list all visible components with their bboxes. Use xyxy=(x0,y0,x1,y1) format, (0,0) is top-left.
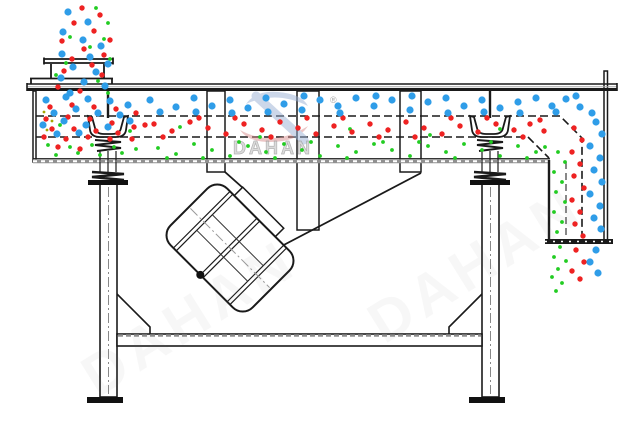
particle-dot xyxy=(345,156,349,160)
particle-dot xyxy=(478,96,485,103)
particle-dot xyxy=(63,136,68,141)
particle-dot xyxy=(246,144,250,148)
particle-dot xyxy=(555,230,559,234)
particle-dot xyxy=(597,225,604,232)
particle-dot xyxy=(61,68,66,73)
particle-dot xyxy=(156,146,160,150)
right-support-spring xyxy=(470,91,510,183)
particle-dot xyxy=(552,108,559,115)
particle-dot xyxy=(237,140,241,144)
particle-dot xyxy=(86,53,93,60)
particle-dot xyxy=(101,82,108,89)
particle-dot xyxy=(573,247,578,252)
particle-dot xyxy=(205,125,210,130)
particle-dot xyxy=(51,120,54,123)
particle-dot xyxy=(417,140,421,144)
particle-dot xyxy=(49,126,54,131)
particle-dot xyxy=(172,103,179,110)
particle-dot xyxy=(316,96,323,103)
particle-dot xyxy=(331,123,336,128)
particle-dot xyxy=(42,96,49,103)
brand-watermark: DAHAN ® DAHAN DAHAN xyxy=(70,92,594,409)
particle-dot xyxy=(598,178,605,185)
particle-dot xyxy=(71,126,76,131)
particle-dot xyxy=(53,130,60,137)
particle-dot xyxy=(60,117,67,124)
particle-dot xyxy=(442,94,449,101)
particle-dot xyxy=(563,160,567,164)
particle-dot xyxy=(129,136,134,141)
brand-watermark-text: DAHAN xyxy=(233,138,313,158)
particle-dot xyxy=(484,115,489,120)
particle-dot xyxy=(228,154,232,158)
particle-dot xyxy=(201,156,205,160)
particle-dot xyxy=(381,140,385,144)
particle-dot xyxy=(39,121,46,128)
particle-dot xyxy=(97,12,102,17)
particle-dot xyxy=(590,214,597,221)
particle-dot xyxy=(106,97,113,104)
particle-dot xyxy=(68,35,72,39)
particle-dot xyxy=(126,117,133,124)
particle-dot xyxy=(406,106,413,113)
particle-dot xyxy=(146,96,153,103)
particle-dot xyxy=(46,143,50,147)
particle-dot xyxy=(91,28,96,33)
particle-dot xyxy=(43,116,48,121)
particle-dot xyxy=(554,190,558,194)
particle-dot xyxy=(496,104,503,111)
screen-box-right-wall xyxy=(604,71,608,243)
particle-dot xyxy=(457,123,462,128)
particle-dot xyxy=(174,152,178,156)
particle-dot xyxy=(598,130,605,137)
screen-box-left-wall xyxy=(33,91,36,162)
particle-dot xyxy=(560,220,564,224)
particle-dot xyxy=(88,45,92,49)
particle-dot xyxy=(537,117,542,122)
particle-dot xyxy=(85,134,90,139)
particle-dot xyxy=(480,108,487,115)
particle-dot xyxy=(569,268,574,273)
particle-dot xyxy=(196,115,201,120)
particle-dot xyxy=(543,145,547,149)
particle-dot xyxy=(376,134,381,139)
particle-dot xyxy=(548,102,555,109)
particle-dot xyxy=(54,73,58,77)
particle-dot xyxy=(81,46,86,51)
particle-dot xyxy=(77,88,82,93)
particle-dot xyxy=(588,109,595,116)
particle-dot xyxy=(439,131,444,136)
particle-dot xyxy=(516,144,520,148)
particle-dot xyxy=(59,28,66,35)
particle-dot xyxy=(480,148,484,152)
particle-dot xyxy=(96,79,100,83)
particle-dot xyxy=(87,116,92,121)
particle-dot xyxy=(69,63,76,70)
particle-dot xyxy=(370,102,377,109)
particle-dot xyxy=(336,109,343,116)
particle-dot xyxy=(59,38,64,43)
particle-dot xyxy=(313,131,318,136)
particle-dot xyxy=(268,134,273,139)
particle-dot xyxy=(554,289,558,293)
particle-dot xyxy=(84,95,91,102)
particle-dot xyxy=(104,123,111,130)
particle-dot xyxy=(116,111,123,118)
particle-dot xyxy=(178,125,182,129)
particle-dot xyxy=(68,145,72,149)
faint-diagonal-watermark-2: DAHAN xyxy=(357,174,594,356)
bracket-left-arm xyxy=(225,172,243,188)
particle-dot xyxy=(572,92,579,99)
particle-dot xyxy=(90,143,94,147)
particle-dot xyxy=(592,118,599,125)
particle-dot xyxy=(99,72,104,77)
particle-dot xyxy=(264,150,268,154)
particle-dot xyxy=(453,156,457,160)
particle-dot xyxy=(102,37,106,41)
particle-dot xyxy=(79,5,84,10)
particle-dot xyxy=(46,129,49,132)
particle-dot xyxy=(534,150,538,154)
particle-dot xyxy=(156,108,163,115)
particle-dot xyxy=(403,119,408,124)
particle-dot xyxy=(586,258,593,265)
particle-dot xyxy=(421,125,426,130)
particle-dot xyxy=(372,92,379,99)
particle-dot xyxy=(93,128,98,133)
particle-dot xyxy=(385,127,390,132)
particle-dot xyxy=(84,18,91,25)
particle-dot xyxy=(280,100,287,107)
particle-dot xyxy=(489,140,493,144)
particle-dot xyxy=(556,150,560,154)
particle-dot xyxy=(228,109,235,116)
particle-dot xyxy=(91,104,96,109)
particle-dot xyxy=(72,105,79,112)
particle-dot xyxy=(64,61,68,65)
particle-dot xyxy=(295,125,300,130)
particle-dot xyxy=(69,56,74,61)
particle-dot xyxy=(226,96,233,103)
particle-dot xyxy=(511,127,516,132)
particle-dot xyxy=(75,129,82,136)
particle-dot xyxy=(120,151,124,155)
particle-dot xyxy=(367,121,372,126)
schematic-canvas: DAHAN ® DAHAN DAHAN xyxy=(0,0,638,428)
particle-dot xyxy=(244,104,251,111)
particle-dot xyxy=(532,94,539,101)
particle-dot xyxy=(262,94,269,101)
particle-dot xyxy=(354,150,358,154)
particle-dot xyxy=(151,121,156,126)
particle-dot xyxy=(187,119,192,124)
particle-dot xyxy=(352,94,359,101)
particle-dot xyxy=(97,42,104,49)
particle-dot xyxy=(282,142,286,146)
particle-dot xyxy=(43,111,46,114)
deck-bottom-pan xyxy=(33,159,550,162)
particle-dot xyxy=(572,221,577,226)
particle-dot xyxy=(550,275,554,279)
particle-dot xyxy=(210,148,214,152)
particle-dot xyxy=(541,128,546,133)
particle-dot xyxy=(560,281,564,285)
particle-dot xyxy=(108,57,112,61)
particle-dot xyxy=(47,104,52,109)
particle-dot xyxy=(388,96,395,103)
particle-dot xyxy=(58,123,62,127)
vibrating-screen-schematic: DAHAN ® DAHAN DAHAN xyxy=(0,0,638,428)
particle-dot xyxy=(106,91,110,95)
particle-dot xyxy=(334,102,341,109)
particle-dot xyxy=(577,276,582,281)
particle-dot xyxy=(41,134,46,139)
particle-dot xyxy=(349,129,354,134)
particle-dot xyxy=(514,98,521,105)
particle-dot xyxy=(55,144,60,149)
particle-dot xyxy=(408,92,415,99)
particle-dot xyxy=(552,255,556,259)
particle-dot xyxy=(590,166,597,173)
particle-dot xyxy=(527,121,532,126)
particle-dot xyxy=(241,121,246,126)
particle-dot xyxy=(160,134,165,139)
particle-dot xyxy=(58,50,65,57)
particle-dot xyxy=(304,115,309,120)
particle-dot xyxy=(498,127,502,131)
particle-dot xyxy=(493,121,498,126)
particle-dot xyxy=(264,108,271,115)
particle-dot xyxy=(82,121,89,128)
particle-dot xyxy=(142,122,147,127)
particle-dot xyxy=(460,102,467,109)
particle-dot xyxy=(498,154,502,158)
particle-dot xyxy=(298,106,305,113)
particle-dot xyxy=(208,102,215,109)
particle-dot xyxy=(309,140,313,144)
particle-dot xyxy=(318,154,322,158)
particle-dot xyxy=(336,144,340,148)
particle-dot xyxy=(408,154,412,158)
particle-dot xyxy=(79,36,86,43)
particle-dot xyxy=(128,129,132,133)
particle-dot xyxy=(273,156,277,160)
particle-dot xyxy=(134,147,138,151)
particle-dot xyxy=(169,128,174,133)
particle-dot xyxy=(104,60,111,67)
particle-dot xyxy=(596,154,603,161)
particle-dot xyxy=(223,131,228,136)
particle-dot xyxy=(520,134,525,139)
particle-dot xyxy=(92,68,99,75)
particle-dot xyxy=(586,142,593,149)
particle-dot xyxy=(300,148,304,152)
particle-dot xyxy=(558,245,562,249)
particle-dot xyxy=(107,37,112,42)
particle-dot xyxy=(552,170,556,174)
particle-dot xyxy=(594,269,601,276)
particle-dot xyxy=(259,127,264,132)
particle-dot xyxy=(55,84,60,89)
particle-dot xyxy=(115,130,120,135)
particle-dot xyxy=(98,153,102,157)
top-cover xyxy=(27,83,617,91)
particle-dot xyxy=(525,156,529,160)
particle-dot xyxy=(77,146,82,151)
particle-dot xyxy=(133,110,138,115)
particle-dot xyxy=(50,109,57,116)
particle-dot xyxy=(94,109,101,116)
particle-dot xyxy=(577,209,582,214)
particle-dot xyxy=(124,101,131,108)
particle-dot xyxy=(556,267,560,271)
particle-dot xyxy=(571,173,576,178)
particle-dot xyxy=(444,150,448,154)
particle-dot xyxy=(106,21,110,25)
particle-dot xyxy=(552,210,556,214)
particle-dot xyxy=(101,52,106,57)
particle-dot xyxy=(54,153,58,157)
particle-dot xyxy=(424,98,431,105)
particle-dot xyxy=(444,109,451,116)
particle-dot xyxy=(569,149,574,154)
particle-dot xyxy=(71,20,76,25)
particle-dot xyxy=(94,6,98,10)
particle-dot xyxy=(89,62,94,67)
particle-dot xyxy=(300,92,307,99)
particle-dot xyxy=(57,74,64,81)
particle-dot xyxy=(113,106,118,111)
particle-dot xyxy=(596,202,603,209)
particle-dot xyxy=(475,129,480,134)
particle-dot xyxy=(165,156,169,160)
particle-dot xyxy=(571,125,576,130)
particle-dot xyxy=(581,259,586,264)
particle-dot xyxy=(563,200,567,204)
particle-dot xyxy=(462,142,466,146)
particle-dot xyxy=(428,133,432,137)
particle-dot xyxy=(581,185,586,190)
particle-dot xyxy=(564,259,568,263)
particle-dot xyxy=(569,197,574,202)
particle-dot xyxy=(190,94,197,101)
particle-dot xyxy=(560,180,564,184)
particle-dot xyxy=(192,108,199,115)
particle-dot xyxy=(580,233,585,238)
particle-dot xyxy=(112,145,116,149)
particle-dot xyxy=(579,137,584,142)
particle-dot xyxy=(412,134,417,139)
particle-dot xyxy=(258,135,262,139)
particle-dot xyxy=(586,190,593,197)
particle-dot xyxy=(192,142,196,146)
particle-dot xyxy=(576,103,583,110)
particle-dot xyxy=(62,93,69,100)
particle-dot xyxy=(80,78,87,85)
particle-dot xyxy=(562,95,569,102)
particle-dot xyxy=(426,144,430,148)
particle-dot xyxy=(372,142,376,146)
particle-dot xyxy=(277,119,282,124)
particle-dot xyxy=(64,8,71,15)
particle-dot xyxy=(577,161,582,166)
particle-dot xyxy=(131,124,136,129)
particle-dot xyxy=(390,148,394,152)
particle-dot xyxy=(592,246,599,253)
particle-dot xyxy=(107,136,112,141)
particle-dot xyxy=(516,109,523,116)
particle-dot xyxy=(76,151,80,155)
